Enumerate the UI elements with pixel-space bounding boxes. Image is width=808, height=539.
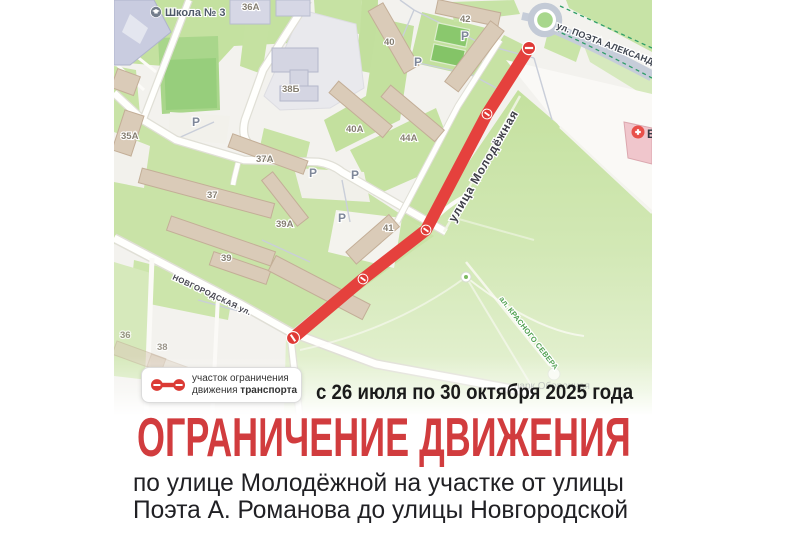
svg-text:Р: Р [461,29,469,43]
svg-text:38Б: 38Б [282,84,300,95]
svg-text:41: 41 [383,223,394,234]
svg-text:37А: 37А [256,154,274,165]
svg-text:38: 38 [157,342,168,353]
svg-text:39: 39 [221,253,232,264]
svg-text:37: 37 [207,190,218,201]
svg-text:Р: Р [192,115,200,129]
svg-text:40А: 40А [346,124,364,135]
svg-text:35А: 35А [121,131,139,142]
svg-text:42: 42 [460,14,471,25]
svg-text:Р: Р [414,55,422,69]
svg-text:Р: Р [351,168,359,182]
svg-text:40: 40 [384,37,395,48]
svg-text:39А: 39А [276,219,294,230]
svg-text:44А: 44А [400,133,418,144]
svg-text:Школа № 3: Школа № 3 [165,7,225,19]
svg-text:36: 36 [120,330,131,341]
svg-text:Р: Р [338,211,346,225]
svg-text:36А: 36А [242,2,260,13]
svg-text:Б: Б [647,127,652,141]
svg-text:Р: Р [309,166,317,180]
